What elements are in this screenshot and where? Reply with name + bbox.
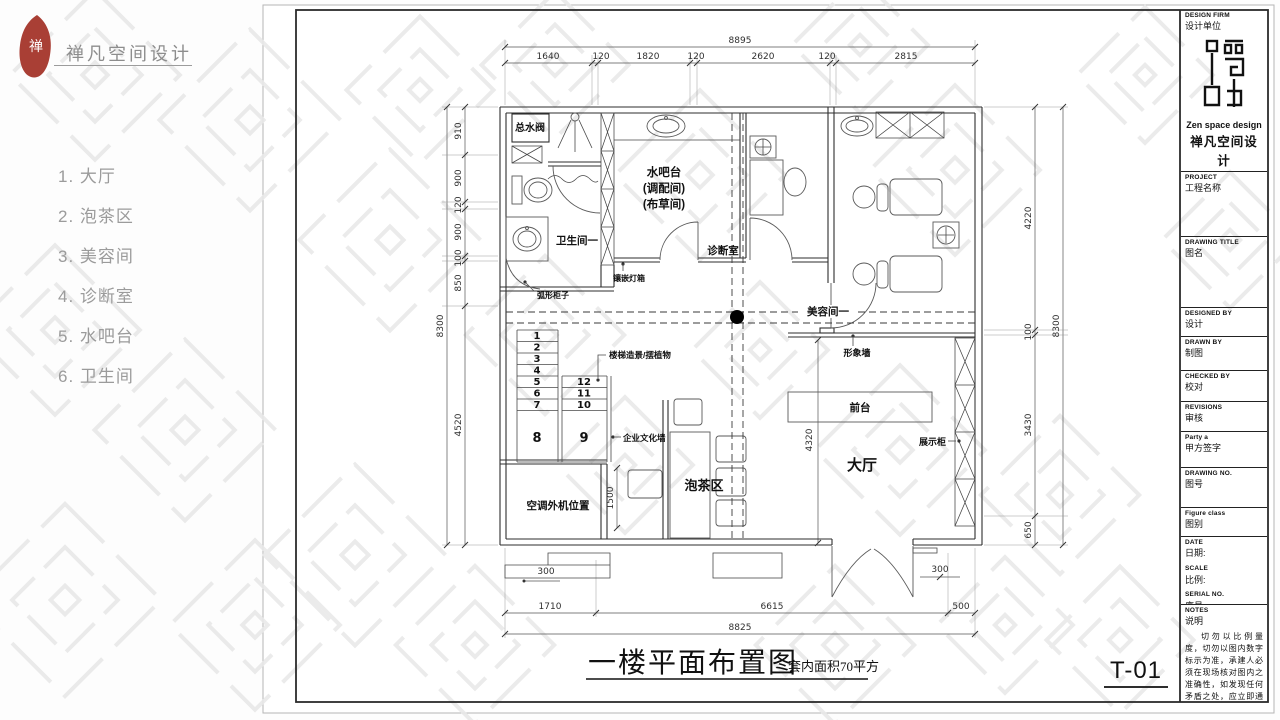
- tb-drawing-title-en: DRAWING TITLE: [1185, 239, 1263, 247]
- label-water-bar: 水吧台: [647, 165, 682, 179]
- tb-design-firm-cn: 设计单位: [1185, 21, 1263, 33]
- tb-design-firm: DESIGN FIRM 设计单位 Zen space design 禅凡空间设计: [1181, 10, 1267, 172]
- dim-left-3: 900: [454, 223, 464, 240]
- dim-top-1: 120: [592, 52, 609, 62]
- stair-step-4: 4: [534, 366, 541, 377]
- tb-drawing-title: DRAWING TITLE 图名: [1181, 237, 1267, 308]
- tb-logo-cn: 禅凡空间设计: [1185, 131, 1263, 169]
- dim-left-2: 120: [454, 196, 464, 213]
- dim-top-2: 1820: [637, 52, 660, 62]
- tb-design-firm-en: DESIGN FIRM: [1185, 12, 1263, 20]
- tb-notes-en: NOTES: [1185, 607, 1263, 615]
- tb-date-cn: 日期:: [1185, 548, 1263, 560]
- dim-top-5: 120: [818, 52, 835, 62]
- tb-notes: NOTES 说明 切勿以比例量度，切勿以图内数字标示为准，承建人必须在现场核对图…: [1181, 605, 1267, 702]
- stair-step-11: 11: [577, 389, 591, 400]
- stair-step-1: 1: [534, 331, 541, 342]
- label-inlaid-lightbox: 镶嵌灯箱: [613, 273, 645, 283]
- tb-checked-by-cn: 校对: [1185, 382, 1263, 394]
- tb-project: PROJECT 工程名称: [1181, 172, 1267, 237]
- legend-item-water-bar: 5. 水吧台: [58, 322, 134, 340]
- tb-designed-by-en: DESIGNED BY: [1185, 310, 1263, 318]
- label-bathroom: 卫生间一: [556, 234, 598, 247]
- label-curved-cabinet: 弧形柜子: [537, 290, 569, 300]
- dim-left-total: 8300: [436, 314, 446, 337]
- tb-notes-cn: 说明: [1185, 616, 1263, 628]
- dim-top-3: 120: [687, 52, 704, 62]
- dim-top-0: 1640: [537, 52, 560, 62]
- dim-right-2: 3430: [1024, 413, 1034, 436]
- tb-drawn-by: DRAWN BY 制图: [1181, 337, 1267, 371]
- tb-designed-by-cn: 设计: [1185, 319, 1263, 331]
- tb-checked-by-en: CHECKED BY: [1185, 373, 1263, 381]
- legend-item-lobby: 1. 大厅: [58, 162, 134, 180]
- dim-left-1: 900: [454, 169, 464, 186]
- label-lobby: 大厅: [847, 456, 877, 474]
- stair-step-6: 6: [534, 389, 541, 400]
- stair-step-10: 10: [577, 400, 591, 411]
- tb-drawing-no-en: DRAWING NO.: [1185, 470, 1263, 478]
- dim-right-3: 650: [1024, 521, 1034, 538]
- tb-drawing-no-cn: 图号: [1185, 479, 1263, 491]
- label-stair-plants: 楼梯造景/摆植物: [609, 350, 671, 360]
- tb-serial-en: SERIAL NO.: [1185, 591, 1263, 599]
- legend-item-tea: 2. 泡茶区: [58, 202, 134, 220]
- tb-project-en: PROJECT: [1185, 174, 1263, 182]
- firm-logo-glyph: [1203, 39, 1245, 111]
- label-diagnosis: 诊断室: [707, 244, 739, 257]
- dim-step-left: 300: [537, 567, 554, 577]
- sheet-number: T-01: [1110, 657, 1162, 684]
- dim-right-total: 8300: [1052, 314, 1062, 337]
- label-front-desk: 前台: [850, 401, 871, 414]
- tb-revisions-cn: 审核: [1185, 413, 1263, 425]
- tb-figure-class-en: Figure class: [1185, 510, 1263, 518]
- dim-right-1: 100: [1024, 323, 1034, 340]
- tb-scale-en: SCALE: [1185, 565, 1263, 573]
- tb-drawing-title-cn: 图名: [1185, 248, 1263, 260]
- brand-underline: [54, 65, 192, 66]
- label-image-wall: 形象墙: [843, 347, 870, 358]
- tb-date-en: DATE: [1185, 539, 1263, 547]
- tb-figure-class: Figure class 图别: [1181, 508, 1267, 537]
- dim-top-4: 2620: [752, 52, 775, 62]
- legend-item-diagnosis: 4. 诊断室: [58, 282, 134, 300]
- plan-title: 一楼平面布置图: [588, 647, 798, 679]
- page: 8895 1640 120 1820 120 2620 120 2815 830…: [0, 0, 1280, 720]
- dim-bottom-0: 1710: [539, 602, 562, 612]
- tb-drawn-by-cn: 制图: [1185, 348, 1263, 360]
- legend-list: 1. 大厅 2. 泡茶区 3. 美容间 4. 诊断室 5. 水吧台 6. 卫生间: [58, 162, 134, 402]
- label-tea: 泡茶区: [684, 478, 723, 493]
- dim-bottom-1: 6615: [761, 602, 784, 612]
- tb-revisions: REVISIONS 审核: [1181, 402, 1267, 432]
- stair-step-3: 3: [534, 354, 541, 365]
- logo-character: 禅: [29, 39, 43, 55]
- tb-date-scale-serial: DATE 日期: SCALE 比例: SERIAL NO. 序号:: [1181, 537, 1267, 605]
- label-display-cabinet: 展示柜: [919, 436, 946, 447]
- dim-step-right: 300: [931, 565, 948, 575]
- brand-name: 禅凡空间设计: [66, 40, 192, 66]
- label-water-bar-2: (调配间): [643, 181, 685, 195]
- label-water-bar-3: (布草间): [643, 197, 685, 211]
- stair-step-5: 5: [534, 377, 541, 388]
- tb-figure-class-cn: 图别: [1185, 519, 1263, 531]
- floor-plan-canvas: 8895 1640 120 1820 120 2620 120 2815 830…: [0, 0, 1280, 720]
- legend-item-bathroom: 6. 卫生间: [58, 362, 134, 380]
- tb-revisions-en: REVISIONS: [1185, 404, 1263, 412]
- label-culture-wall: 企业文化墙: [622, 433, 666, 443]
- label-main-valve: 总水阀: [515, 121, 545, 134]
- dim-left-6: 4520: [454, 413, 464, 436]
- legend-item-beauty: 3. 美容间: [58, 242, 134, 260]
- stair-step-8: 8: [532, 431, 541, 446]
- tb-party-a: Party a 甲方签字: [1181, 432, 1267, 468]
- column-dot: [730, 310, 744, 324]
- dim-top-6: 2815: [895, 52, 918, 62]
- dim-left-0: 910: [454, 122, 464, 139]
- stair-step-2: 2: [534, 343, 541, 354]
- label-beauty: 美容间一: [807, 305, 849, 318]
- plan-area-note: 套内面积70平方: [788, 659, 879, 674]
- tb-project-cn: 工程名称: [1185, 183, 1263, 195]
- dim-right-0: 4220: [1024, 206, 1034, 229]
- dim-lobby-width: 4320: [805, 428, 815, 451]
- dim-left-4: 100: [454, 249, 464, 266]
- dim-bottom-2: 500: [952, 602, 969, 612]
- tb-logo-en: Zen space design: [1185, 120, 1263, 130]
- dim-left-5: 850: [454, 274, 464, 291]
- tb-notes-text: 切勿以比例量度，切勿以图内数字标示为准，承建人必须在现场核对图内之准确性，如发现…: [1185, 631, 1263, 702]
- tb-drawing-no: DRAWING NO. 图号: [1181, 468, 1267, 508]
- tb-scale-cn: 比例:: [1185, 575, 1263, 587]
- label-ac-unit: 空调外机位置: [527, 499, 590, 512]
- tb-party-a-en: Party a: [1185, 434, 1263, 442]
- tb-checked-by: CHECKED BY 校对: [1181, 371, 1267, 402]
- tb-designed-by: DESIGNED BY 设计: [1181, 308, 1267, 337]
- stair-step-7: 7: [534, 400, 541, 411]
- dim-bottom-total: 8825: [729, 623, 752, 633]
- stair-step-9: 9: [579, 431, 588, 446]
- brand-logo: 禅: [18, 14, 56, 80]
- dim-top-total: 8895: [729, 36, 752, 46]
- tb-party-a-cn: 甲方签字: [1185, 443, 1263, 455]
- title-block: DESIGN FIRM 设计单位 Zen space design 禅凡空间设计…: [1181, 10, 1267, 702]
- stair-step-12: 12: [577, 377, 591, 388]
- tb-drawn-by-en: DRAWN BY: [1185, 339, 1263, 347]
